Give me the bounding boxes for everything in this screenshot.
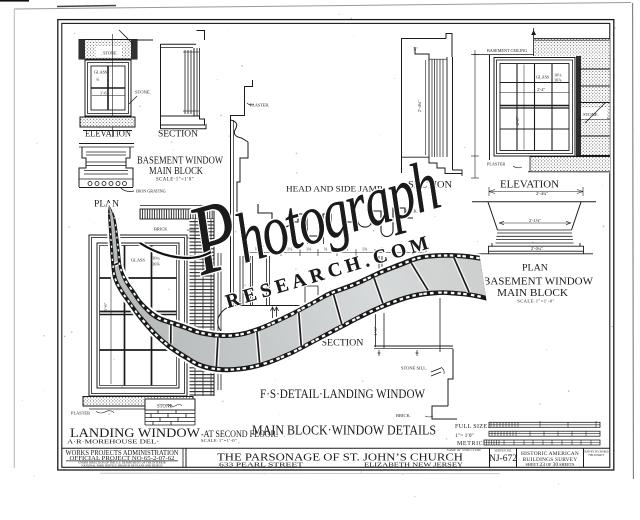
svg-text:2′-1⅜″: 2′-1⅜″ (529, 218, 541, 223)
svg-text:⅞″: ⅞″ (413, 47, 418, 52)
svg-text:ELEVATION: ELEVATION (85, 130, 131, 140)
svg-text:SCALE·1″=1′0″: SCALE·1″=1′0″ (156, 177, 194, 182)
svg-text:SECTION: SECTION (158, 130, 198, 140)
svg-text:STONE: STONE (157, 405, 172, 410)
svg-text:ELEVATION: ELEVATION (500, 180, 559, 191)
svg-text:MAIN BLOCK: MAIN BLOCK (149, 166, 203, 177)
svg-text:633 PEARL STREET: 633 PEARL STREET (219, 463, 304, 469)
svg-text:GLASS: GLASS (94, 70, 108, 75)
svg-text:2′-4″: 2′-4″ (537, 87, 545, 92)
svg-text:THE PARSONAGE OF ST. JOHN’S CH: THE PARSONAGE OF ST. JOHN’S CHURCH (217, 451, 463, 463)
svg-text:MAIN BLOCK·WINDOW DETAILS: MAIN BLOCK·WINDOW DETAILS (252, 423, 436, 438)
svg-text:STONE SILL.: STONE SILL. (401, 366, 427, 371)
svg-text:10¼: 10¼ (152, 256, 160, 261)
svg-text:4′-6″: 4′-6″ (515, 116, 520, 125)
svg-text:⁏⁄₁: ⁏⁄₁ (96, 76, 100, 81)
svg-text:GLASS: GLASS (131, 258, 145, 263)
svg-text:2′-0¼″: 2′-0¼″ (531, 246, 543, 251)
svg-text:NATIONAL PARK SERVICE, BRANCH: NATIONAL PARK SERVICE, BRANCH OF PLANS A… (81, 464, 163, 468)
svg-text:10⅞: 10⅞ (152, 262, 160, 267)
svg-text:PLASTER: PLASTER (71, 411, 90, 416)
svg-text:A·R·MOREHOUSE DEL·: A·R·MOREHOUSE DEL· (67, 438, 159, 445)
svg-text:BRICK.: BRICK. (396, 413, 411, 418)
svg-text:ELIZABETH NEW JERSEY: ELIZABETH NEW JERSEY (364, 463, 464, 469)
svg-text:METRIC: METRIC (457, 441, 483, 447)
svg-text:STONE.: STONE. (135, 90, 151, 95)
svg-text:. STONE .: . STONE . (101, 51, 119, 56)
svg-text:1″= 1′0″: 1″= 1′0″ (455, 433, 474, 439)
svg-text:SURVEY NO.: SURVEY NO. (494, 448, 512, 452)
svg-text:PLASTER: PLASTER (487, 162, 505, 167)
svg-text:10⅞: 10⅞ (554, 78, 562, 83)
svg-text:2′-4¾″: 2′-4¾″ (536, 191, 548, 196)
svg-text:STONE.: STONE. (583, 112, 599, 117)
svg-text:NJ-672: NJ-672 (489, 454, 517, 464)
svg-text:BRICK: BRICK (154, 227, 168, 232)
svg-text:SCALE·1″=1′-0″: SCALE·1″=1′-0″ (517, 299, 555, 304)
svg-text:PLASTER.: PLASTER. (250, 103, 269, 108)
svg-text:SCALE·1″=1′-0″: SCALE·1″=1′-0″ (201, 438, 237, 443)
svg-text:F·S·DETAIL·LANDING WINDOW: F·S·DETAIL·LANDING WINDOW (260, 387, 425, 401)
svg-text:FIELD PARTY: FIELD PARTY (588, 454, 604, 457)
svg-text:SECTION: SECTION (322, 338, 364, 348)
svg-text:MAIN BLOCK: MAIN BLOCK (497, 288, 568, 299)
svg-text:FULL SIZE.: FULL SIZE. (455, 424, 490, 430)
svg-text:PLAN: PLAN (522, 264, 548, 274)
svg-text:IRON GRATING: IRON GRATING (136, 189, 166, 194)
svg-text:1′-6″: 1′-6″ (100, 91, 108, 96)
svg-text:5′-6″: 5′-6″ (103, 302, 108, 311)
svg-text:BASEMENT CEILING: BASEMENT CEILING (487, 48, 527, 53)
svg-text:GLASS: GLASS (536, 75, 550, 80)
svg-text:1′-6″: 1′-6″ (373, 326, 378, 335)
svg-text:BASEMENT WINDOW: BASEMENT WINDOW (483, 277, 593, 288)
svg-text:2′-4¾″: 2′-4¾″ (417, 100, 422, 112)
